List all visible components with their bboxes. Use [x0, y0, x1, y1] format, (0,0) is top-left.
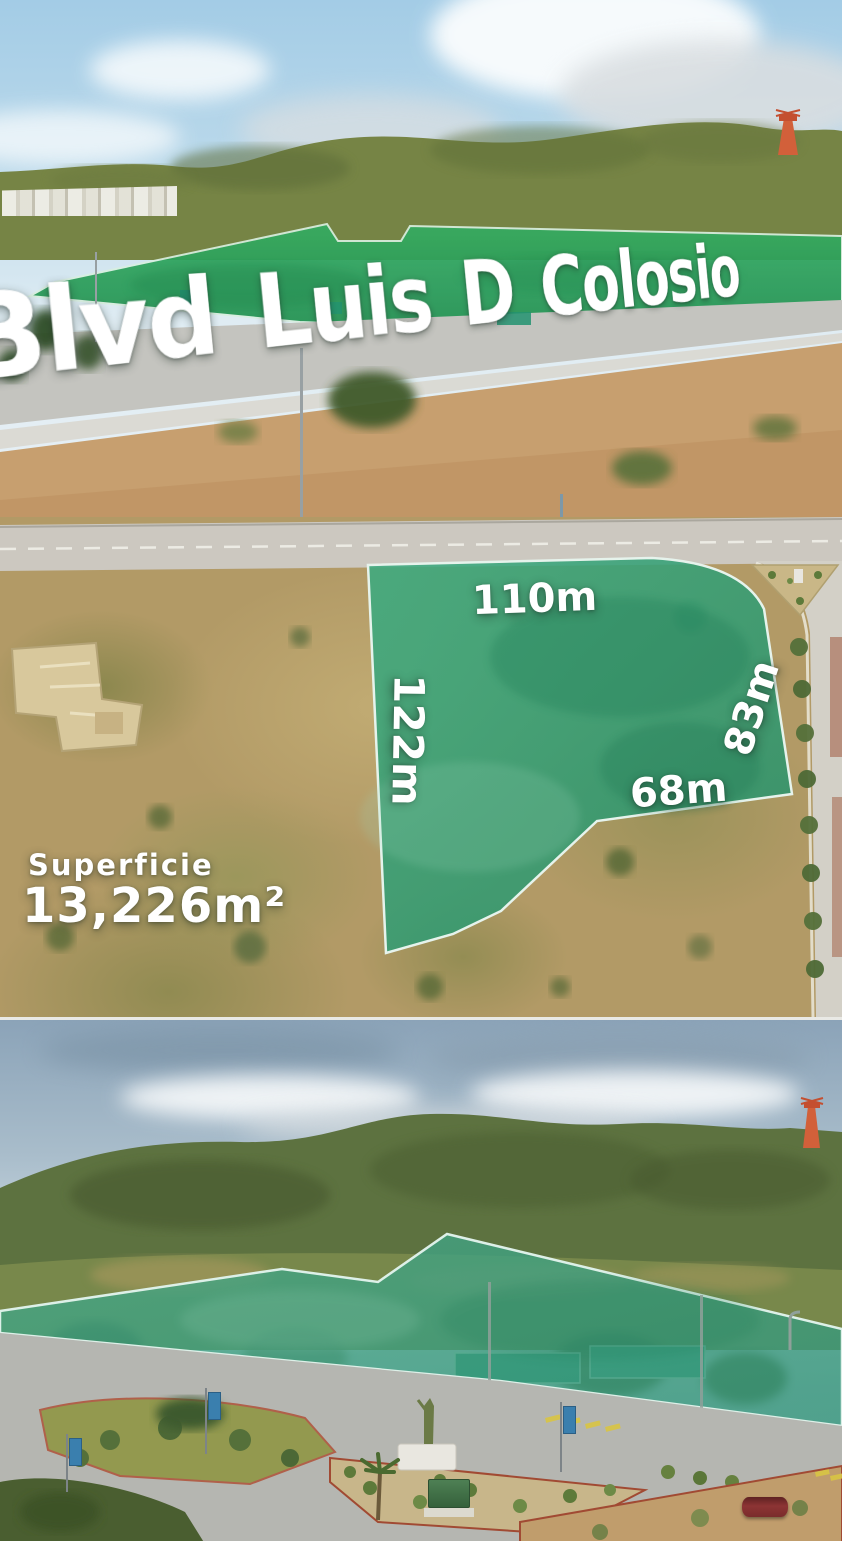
banner-flag-icon [69, 1438, 82, 1466]
banner-pole [560, 1402, 562, 1472]
ruins-foundation [12, 643, 142, 751]
tree [328, 372, 416, 428]
banner-pole [66, 1434, 68, 1492]
banner-pole [205, 1388, 207, 1454]
photo-bottom-aerial [0, 1017, 842, 1541]
surface-area-value: 13,226m² [22, 878, 286, 934]
surface-area-label: Superficie [28, 848, 214, 882]
utility-pad [424, 1508, 474, 1517]
banner-flag-icon [208, 1392, 221, 1420]
banner-flag-icon [563, 1406, 576, 1434]
palm-tree [378, 1472, 380, 1520]
car [742, 1497, 788, 1517]
promo-image: Blvd Luis D Colosio [0, 0, 842, 1541]
streetlight-pole [300, 348, 303, 517]
houses [2, 186, 177, 216]
measurement-top: 110m [471, 574, 598, 624]
photo3-scenery [0, 1020, 842, 1541]
measurement-left: 122m [382, 674, 433, 806]
utility-box [428, 1479, 470, 1508]
monument [794, 569, 803, 583]
measurement-bottom: 68m [629, 765, 729, 818]
photo-top-aerial: Blvd Luis D Colosio [0, 0, 842, 517]
